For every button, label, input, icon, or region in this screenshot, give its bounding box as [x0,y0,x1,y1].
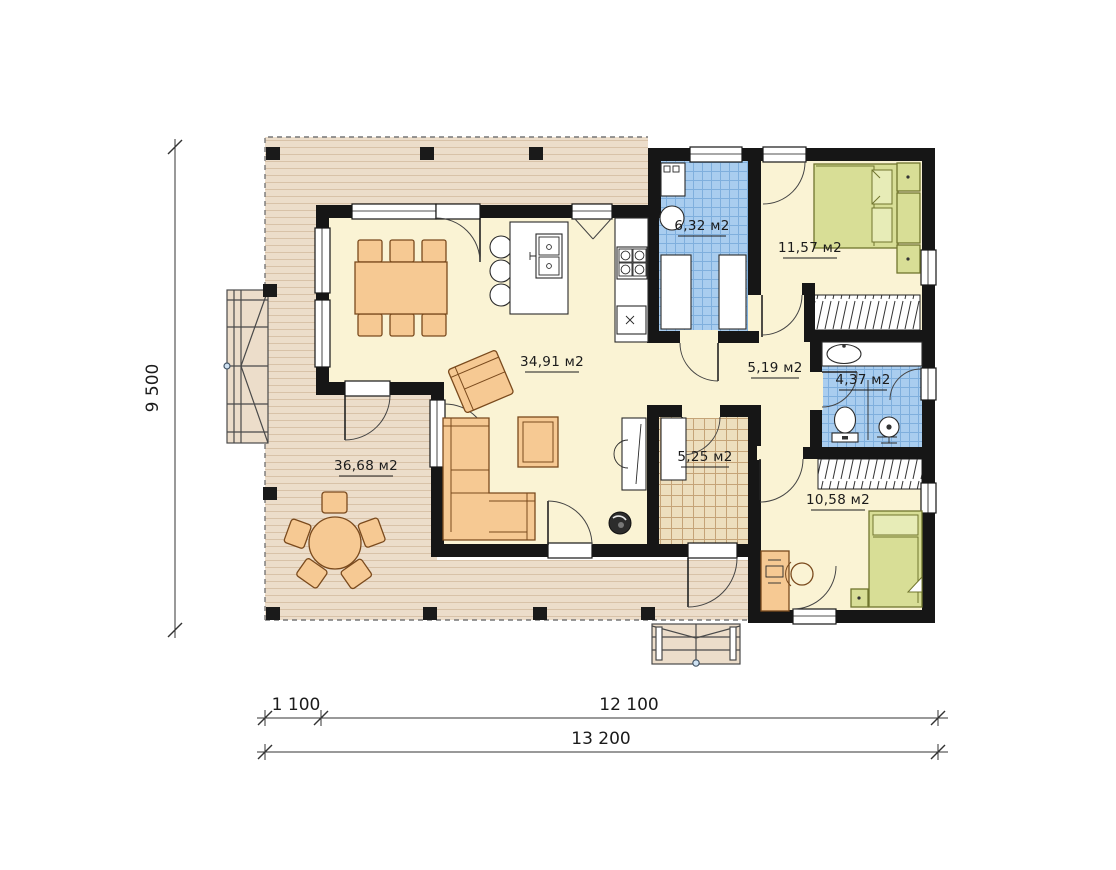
dim-width-right: 12 100 [599,695,658,715]
dimension-bottom-segments: 1 100 12 100 [257,695,948,726]
room-label-terrace: 36,68 м2 [334,458,398,474]
room-label-bedroom-top: 11,57 м2 [778,240,842,256]
kitchen-island [490,222,568,314]
room-label-entry: 5,25 м2 [677,449,732,465]
dim-width-left: 1 100 [272,695,321,715]
window [315,228,330,293]
window [921,483,936,513]
entrance-steps [652,624,740,666]
room-label-living: 34,91 м2 [520,354,584,370]
window [690,147,742,162]
floor-plan-canvas: 36,68 м2 34,91 м2 6,32 м2 11,57 м2 5,19 … [0,0,1116,870]
room-label-laundry: 6,32 м2 [674,218,729,234]
floor-plant [609,512,631,534]
side-stairs [224,290,268,443]
room-label-bathroom: 4,37 м2 [835,372,890,388]
window [352,204,436,219]
closet-bedroom-bottom [818,459,922,489]
desk [761,551,789,611]
room-label-bedroom-bottom: 10,58 м2 [806,492,870,508]
floor-plan-page: 36,68 м2 34,91 м2 6,32 м2 11,57 м2 5,19 … [0,0,1116,870]
dimension-left: 9 500 [143,139,182,638]
dimension-bottom-total: 13 200 [257,729,948,760]
coffee-table [518,417,558,467]
kitchen-counter [615,218,648,342]
window [315,300,330,367]
room-label-hallway: 5,19 м2 [747,360,802,376]
dim-width-total: 13 200 [571,729,630,749]
dining-table [355,240,447,336]
closet-bedroom-top [812,295,920,330]
dim-height-total: 9 500 [143,364,163,413]
window [921,250,936,285]
